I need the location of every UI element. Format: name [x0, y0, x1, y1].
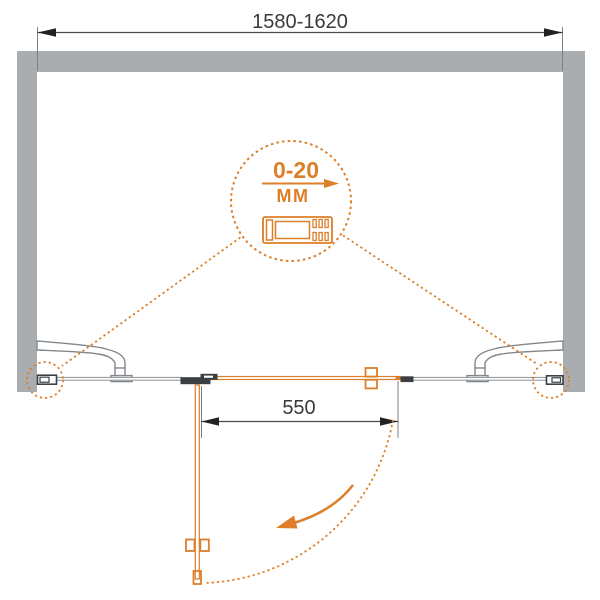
door-handle-outer: [366, 368, 378, 377]
technical-drawing: 1580-1620: [0, 0, 600, 600]
overall-width-label: 1580-1620: [252, 11, 348, 33]
support-post-left: [115, 368, 125, 376]
wall-profile-right-plan: [547, 376, 564, 384]
door-open-position: [186, 385, 209, 584]
door-panel-open: [195, 385, 199, 579]
door-width-dimension: 550: [202, 381, 399, 438]
door-handle-left: [186, 540, 195, 552]
arrow-left-icon: [38, 28, 57, 37]
swing-arrow-curve: [294, 485, 353, 523]
wall-right: [563, 51, 585, 392]
adjustment-callout: 0-20 ММ: [231, 141, 351, 261]
fixed-panel-left: [56, 377, 182, 380]
door-width-label: 550: [282, 397, 315, 419]
adjustment-unit-label: ММ: [277, 186, 310, 206]
door-closed-position: [206, 368, 400, 388]
adjustable-profile-icon: [263, 217, 332, 243]
pivot-hinge: [181, 374, 218, 384]
door-handle-right: [200, 540, 209, 552]
wall-top: [17, 51, 585, 72]
support-bar-right: [475, 341, 563, 369]
hinge-slot: [204, 376, 213, 378]
arrow-right-icon: [544, 28, 563, 37]
support-bar-left: [37, 341, 125, 369]
drawing-canvas: 1580-1620: [0, 0, 600, 600]
fixed-panel-right: [413, 377, 548, 380]
strike-seal: [396, 376, 401, 380]
arrow-right-icon: [380, 417, 398, 425]
door-handle-inner: [366, 380, 378, 389]
arrow-left-icon: [202, 417, 220, 425]
door-swing-arc: [204, 420, 393, 583]
support-post-right: [475, 368, 485, 376]
wall-profile-left-plan: [38, 375, 57, 384]
strike-block: [401, 376, 414, 382]
adjustment-range-label: 0-20: [273, 157, 319, 183]
wall-left: [17, 51, 37, 392]
swing-arrow-head-icon: [276, 516, 298, 529]
